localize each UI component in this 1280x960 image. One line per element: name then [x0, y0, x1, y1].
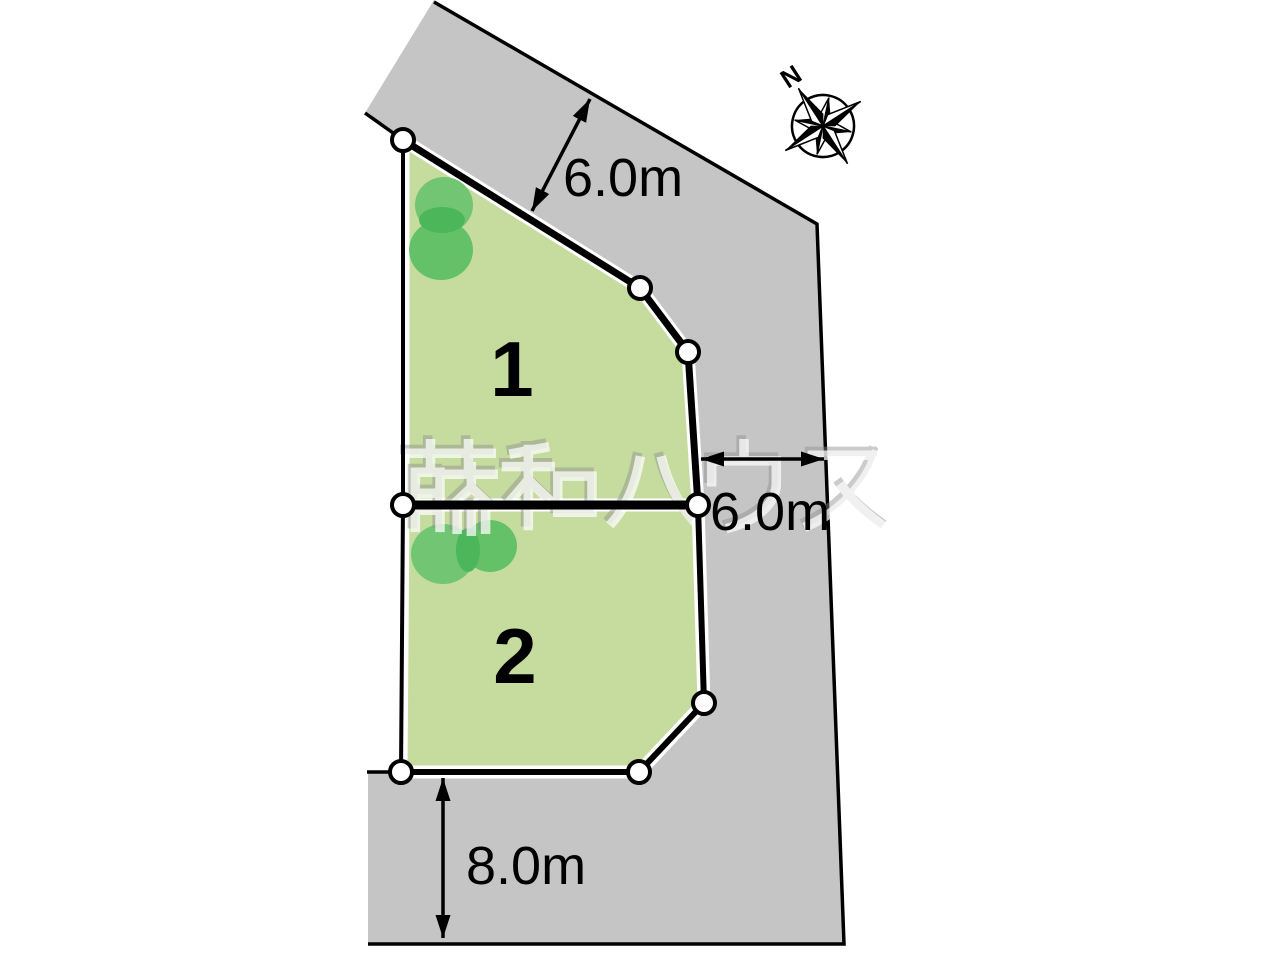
- compass-rose-icon: N: [745, 39, 885, 188]
- lot-1-label: 1: [490, 325, 533, 413]
- survey-point-marker: [693, 692, 715, 714]
- compass-north-label: N: [775, 59, 807, 94]
- lot-west-boundary: [401, 140, 403, 772]
- dimension-label-east-road: 6.0m: [710, 482, 830, 542]
- dimension-label-north-road: 6.0m: [563, 148, 683, 208]
- survey-point-marker: [392, 494, 414, 516]
- survey-point-marker: [392, 129, 414, 151]
- site-plan: 藤和ハウス 6.0m 6.0m 8.0m 1 2: [0, 0, 1280, 960]
- lot-2-label: 2: [493, 612, 536, 700]
- survey-point-marker: [628, 761, 650, 783]
- survey-point-marker: [629, 277, 651, 299]
- survey-point-marker: [390, 761, 412, 783]
- dimension-label-south-road: 8.0m: [466, 836, 586, 896]
- survey-point-marker: [677, 341, 699, 363]
- compass-long-points: [761, 64, 885, 188]
- site-plan-canvas: 藤和ハウス 6.0m 6.0m 8.0m 1 2: [0, 0, 1280, 960]
- survey-point-marker: [687, 494, 709, 516]
- tree-canopy: [419, 207, 465, 233]
